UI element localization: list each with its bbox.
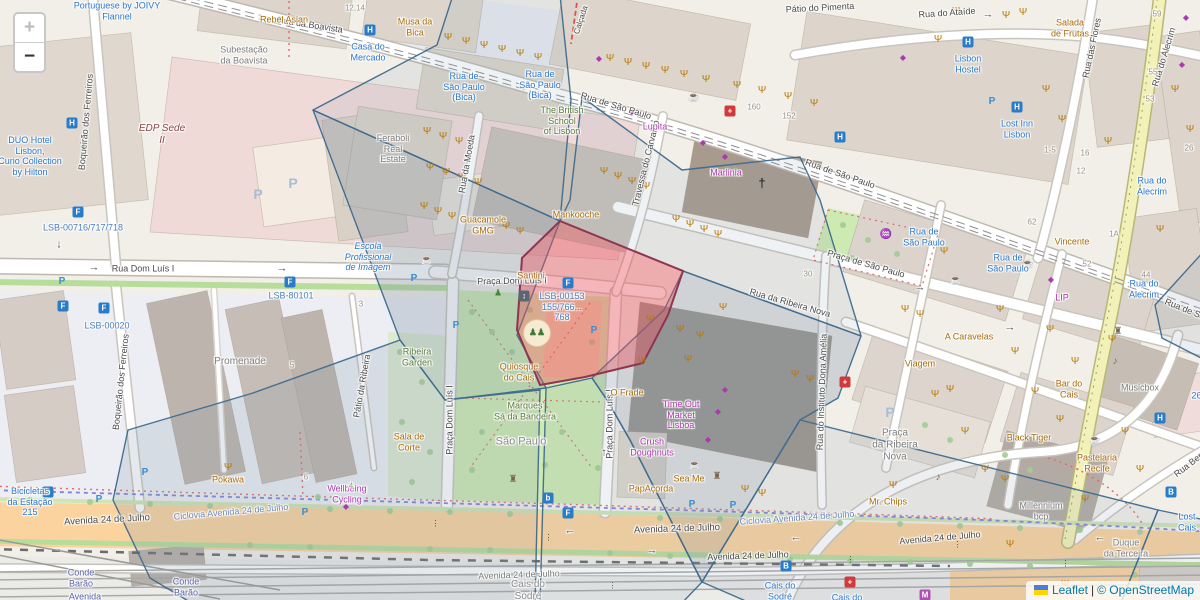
ukraine-flag-icon: [1034, 585, 1048, 595]
attribution: Leaflet|© OpenStreetMap: [1026, 581, 1200, 600]
map-viewport[interactable]: ΨΨΨΨΨΨΨΨΨΨΨΨΨΨΨΨΨΨΨΨΨΨΨΨΨΨΨΨΨΨΨΨΨΨΨΨΨΨΨΨ…: [0, 0, 1200, 600]
attribution-separator: |: [1091, 583, 1094, 597]
osm-link[interactable]: © OpenStreetMap: [1097, 583, 1194, 597]
zoom-out-button[interactable]: −: [15, 43, 44, 71]
leaflet-link[interactable]: Leaflet: [1052, 583, 1088, 597]
zoom-in-button[interactable]: +: [15, 14, 44, 43]
zoom-control: + −: [13, 12, 46, 73]
map-canvas: [0, 0, 1200, 600]
